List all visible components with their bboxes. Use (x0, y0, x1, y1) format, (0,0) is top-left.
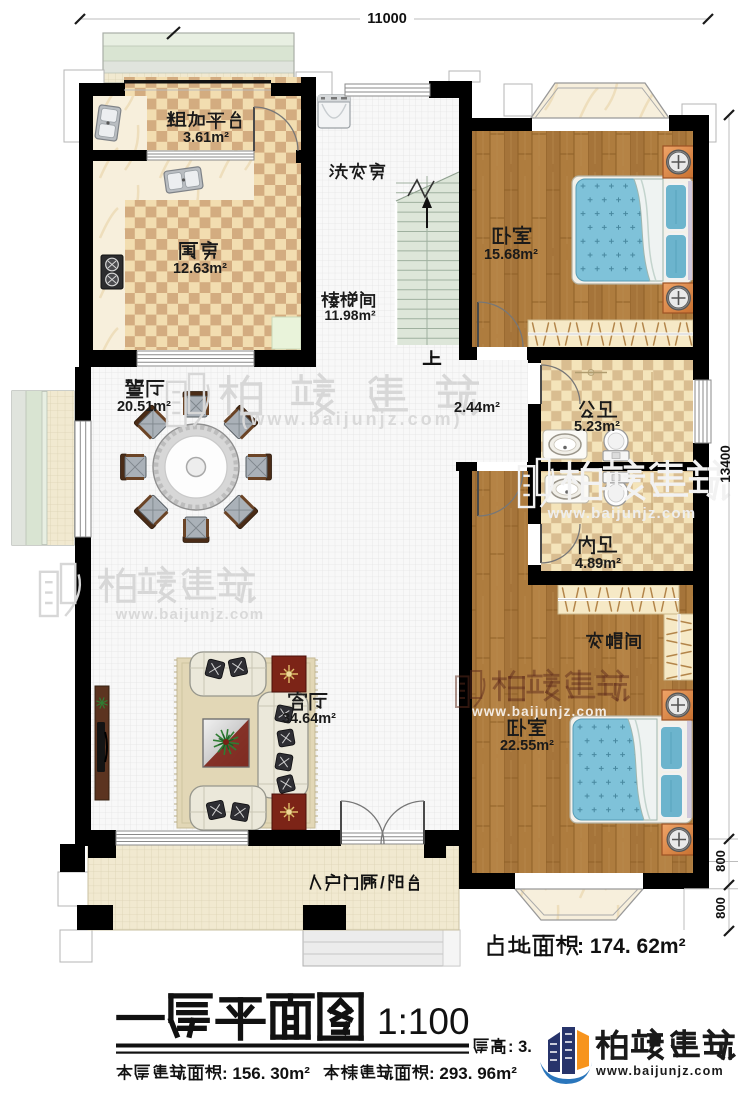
svg-text:: 293. 96m²: : 293. 96m² (429, 1064, 517, 1083)
svg-text:www.baijunjz.com: www.baijunjz.com (471, 704, 608, 719)
svg-text:: 174. 62m²: : 174. 62m² (577, 935, 686, 958)
svg-text:1:100: 1:100 (377, 1001, 470, 1042)
svg-text:800: 800 (713, 897, 728, 919)
svg-text:5.23m²: 5.23m² (574, 419, 620, 435)
svg-text:: 156. 30m²: : 156. 30m² (222, 1064, 310, 1083)
svg-text:4.89m²: 4.89m² (575, 556, 621, 572)
svg-text:20.51m²: 20.51m² (117, 399, 171, 415)
svg-text:www.baijunjz.com: www.baijunjz.com (595, 1064, 724, 1078)
svg-text:34.64m²: 34.64m² (282, 711, 336, 727)
svg-text:800: 800 (713, 850, 728, 872)
svg-text:(www.baijunjz.com): (www.baijunjz.com) (241, 409, 462, 429)
svg-text:15.68m²: 15.68m² (484, 247, 538, 263)
svg-text:: 3.: : 3. (508, 1038, 532, 1056)
svg-text:22.55m²: 22.55m² (500, 738, 554, 754)
svg-text:13400: 13400 (718, 445, 733, 483)
svg-text:www.baijunjz.com: www.baijunjz.com (115, 606, 265, 623)
svg-text:3.61m²: 3.61m² (183, 130, 229, 146)
svg-text:www.baijunjz.com: www.baijunjz.com (547, 505, 697, 522)
svg-text:12.63m²: 12.63m² (173, 261, 227, 277)
svg-text:2.44m²: 2.44m² (454, 400, 500, 416)
svg-text:11.98m²: 11.98m² (324, 307, 376, 323)
svg-text:/: / (380, 873, 385, 892)
svg-text:11000: 11000 (367, 11, 407, 27)
